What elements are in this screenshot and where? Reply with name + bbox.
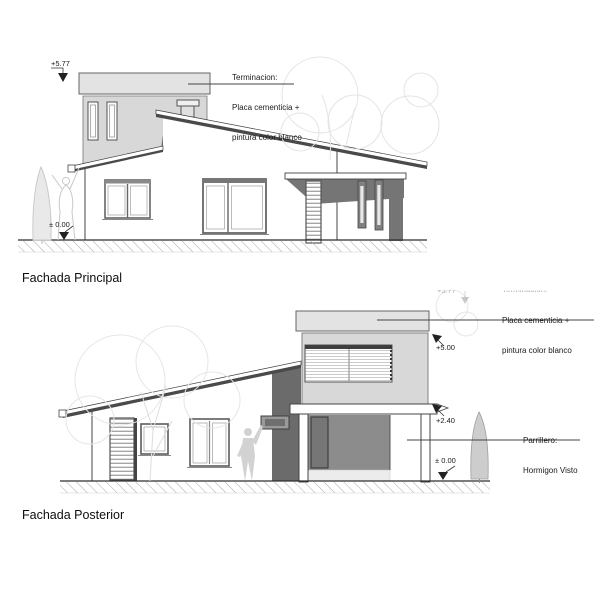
tower-slit-window	[88, 102, 98, 140]
finish-note-line1: Terminacion:	[232, 73, 302, 83]
finish-note-line3: pintura color blanco	[502, 346, 572, 356]
title-facade-principal: Fachada Principal	[22, 271, 122, 285]
upper-box	[296, 311, 429, 409]
tower-parapet	[79, 73, 210, 94]
parrillero-beam	[290, 404, 437, 414]
slatted-door	[110, 418, 137, 481]
cypress-tree-posterior	[471, 412, 488, 483]
window-left	[102, 180, 153, 220]
parrillero-door	[311, 417, 328, 468]
grill-note-line1: Parrillero:	[523, 436, 578, 446]
hanging-slit-window	[358, 181, 366, 228]
level-label-roof-posterior: +5.00	[436, 343, 455, 352]
title-facade-posterior: Fachada Posterior	[22, 508, 124, 522]
level-label-parapet-principal: +5.77	[51, 59, 70, 68]
window-center	[200, 179, 269, 235]
tower-slit-window	[107, 102, 117, 140]
box-parapet	[296, 311, 429, 331]
large-window	[187, 419, 232, 468]
level-label-ground-principal: ± 0.00	[49, 220, 70, 229]
porch-column	[389, 197, 403, 241]
finish-note-line2: Placa cementicia +	[502, 316, 572, 326]
grill-note-line2: Hormigon Visto	[523, 466, 578, 476]
louver-window	[305, 345, 392, 382]
architectural-sheet: +5.77 Terminacion: Placa cementicia + pi…	[0, 0, 600, 600]
parrillero	[290, 404, 448, 482]
finish-note-line2: Placa cementicia +	[232, 103, 302, 113]
ground-principal	[18, 240, 427, 252]
ground-posterior	[60, 481, 490, 493]
parrillero-base	[308, 470, 390, 481]
person-figure	[52, 168, 79, 240]
level-marker-ground-posterior-icon	[438, 466, 455, 480]
grill-note: Parrillero: Hormigon Visto	[523, 416, 578, 496]
vent-box	[261, 416, 289, 429]
level-label-beam-posterior: +2.40	[436, 416, 455, 425]
hanging-slit-window	[375, 180, 383, 230]
finish-note-posterior: Placa cementicia + pintura color blanco	[502, 296, 572, 376]
parrillero-column-left	[299, 414, 308, 482]
finish-note-line3: pintura color blanco	[232, 133, 302, 143]
facade-principal-drawing	[18, 57, 439, 252]
slatted-screen	[306, 181, 321, 243]
small-window	[138, 424, 171, 456]
porch-fascia	[285, 173, 406, 179]
parrillero-column-right	[421, 414, 430, 482]
cypress-tree	[33, 167, 51, 244]
level-label-ground-posterior: ± 0.00	[435, 456, 456, 465]
finish-note-principal: Terminacion: Placa cementicia + pintura …	[232, 53, 302, 163]
level-marker-top-icon	[51, 68, 68, 82]
